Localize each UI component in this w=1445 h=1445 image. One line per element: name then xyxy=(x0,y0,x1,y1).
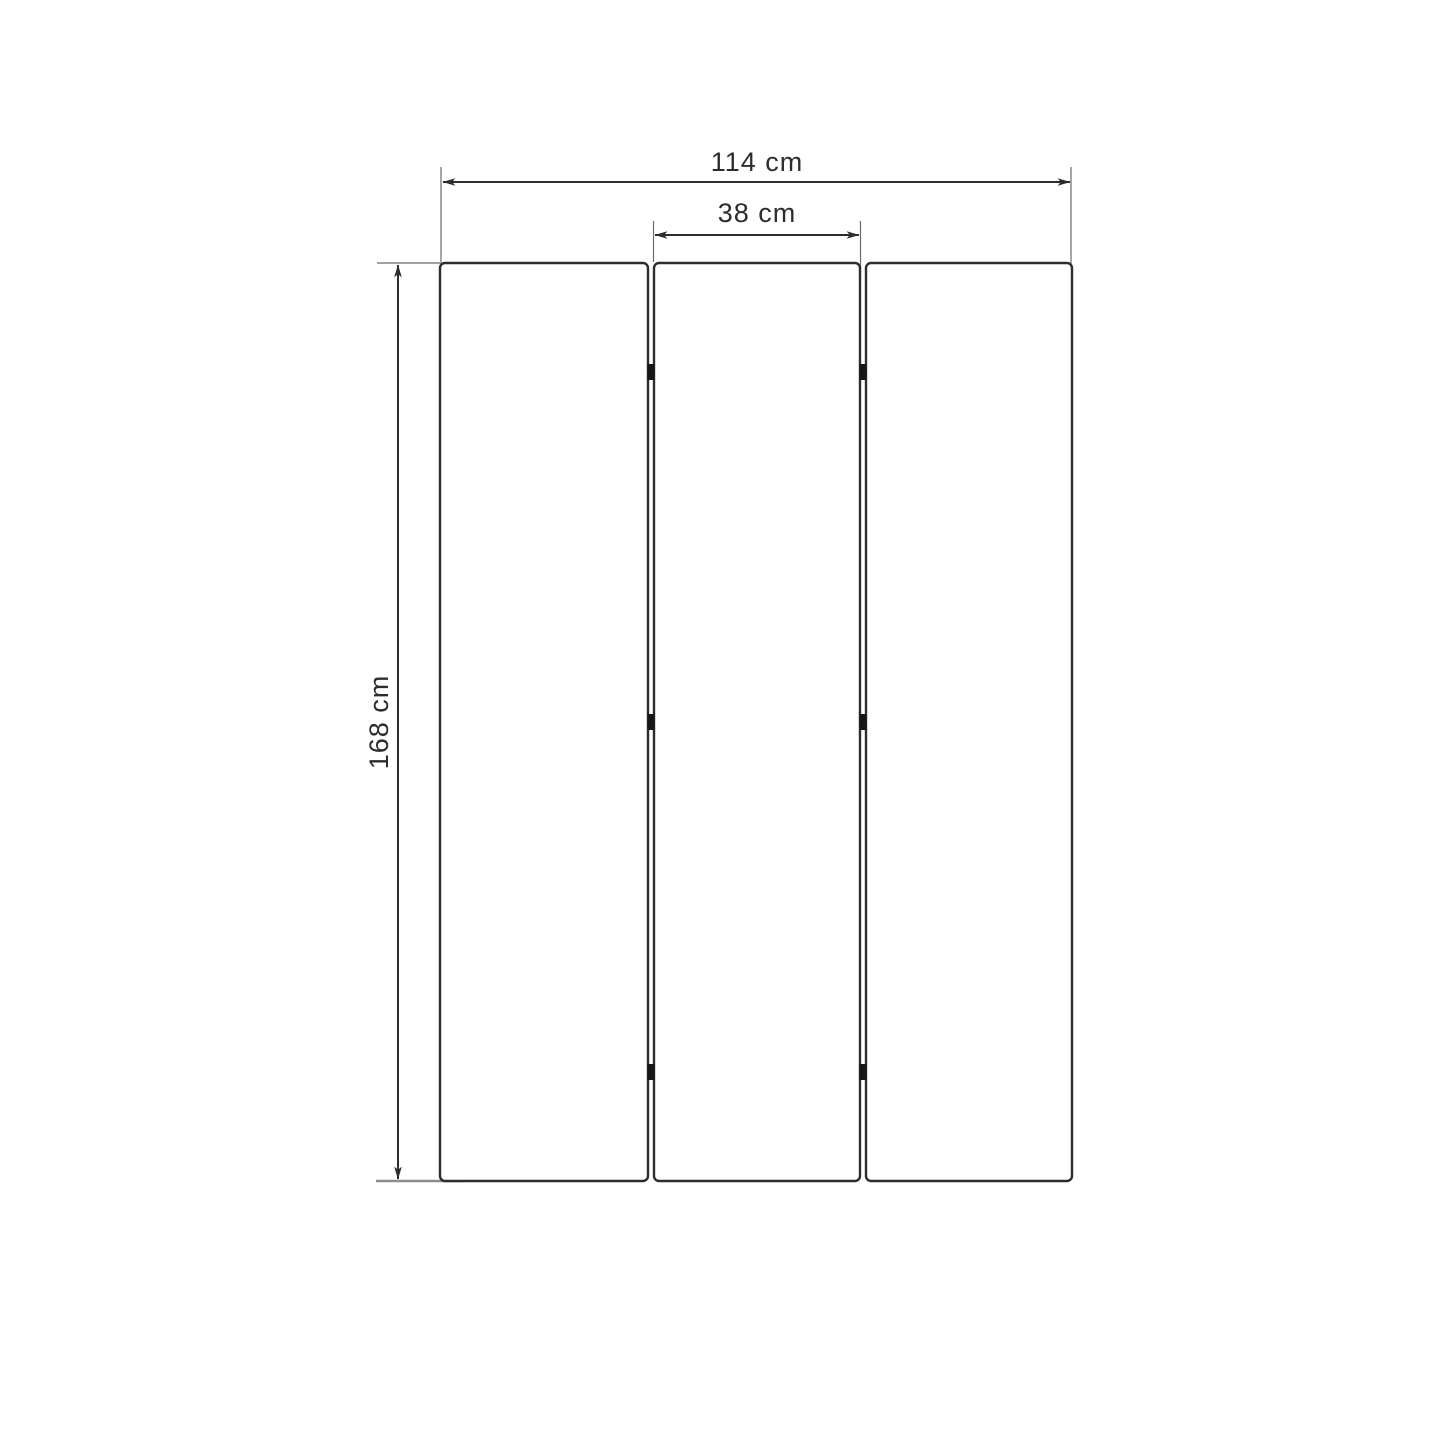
dimension-diagram-canvas: 114 cm 38 cm 168 cm xyxy=(0,0,1445,1445)
hinge-right-bottom xyxy=(860,1064,867,1080)
panel-3 xyxy=(866,263,1072,1181)
hinge-left-bottom xyxy=(648,1064,655,1080)
panel-width-dimension: 38 cm xyxy=(655,198,859,235)
hinge-right-top xyxy=(860,364,867,380)
panel-2 xyxy=(654,263,860,1181)
panel-1 xyxy=(440,263,648,1181)
total-width-dimension: 114 cm xyxy=(443,147,1070,182)
total-width-dimension-label: 114 cm xyxy=(711,147,804,177)
panel-width-dimension-label: 38 cm xyxy=(718,198,797,228)
hinge-left-middle xyxy=(648,714,655,730)
hinge-right-middle xyxy=(860,714,867,730)
dimension-diagram: 114 cm 38 cm 168 cm xyxy=(0,0,1445,1445)
screen-panels xyxy=(440,263,1072,1181)
height-dimension: 168 cm xyxy=(364,265,398,1179)
height-dimension-label: 168 cm xyxy=(364,675,394,770)
hinge-left-top xyxy=(648,364,655,380)
